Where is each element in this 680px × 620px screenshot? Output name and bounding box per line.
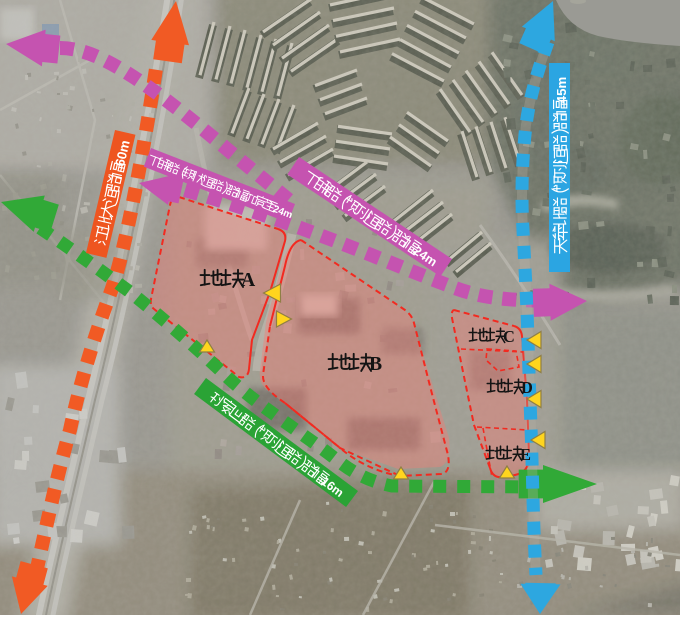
- svg-text:D: D: [521, 378, 533, 397]
- svg-text:B: B: [369, 353, 382, 375]
- svg-text:C: C: [503, 327, 515, 346]
- svg-text:45m: 45m: [554, 77, 569, 103]
- svg-text:E: E: [520, 445, 531, 464]
- svg-text:A: A: [241, 269, 256, 291]
